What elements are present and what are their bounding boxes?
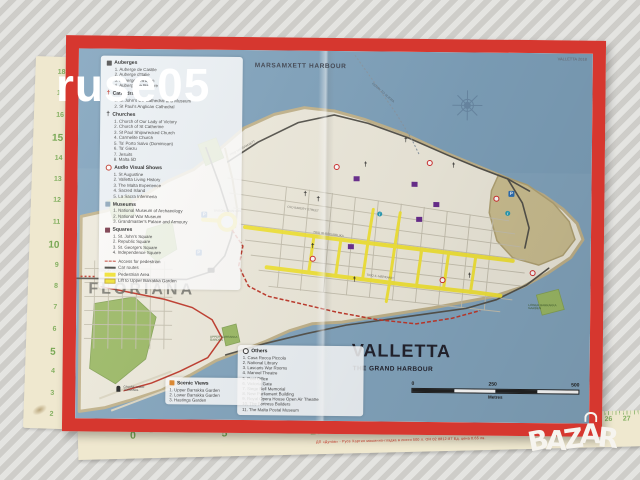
museum-chip-icon xyxy=(105,202,110,207)
church-cross-icon: † xyxy=(106,111,110,118)
church-icon: † xyxy=(316,197,320,204)
bazar-logo: BAZAR xyxy=(527,422,616,458)
museum-icon xyxy=(416,217,422,222)
church-icon: † xyxy=(353,277,357,284)
others-item: 11. The Malta Postal Museum xyxy=(242,407,358,413)
museum-icon xyxy=(348,244,354,249)
grand-harbour-label: THE GRAND HARBOUR xyxy=(353,365,434,373)
church-icon: † xyxy=(468,273,472,280)
attraction-icon xyxy=(440,277,446,283)
legend-section-title: Audio Visual Shows xyxy=(114,165,162,171)
ruler-number: 2 xyxy=(23,410,54,432)
legend-section-museums: Museums 1. National Museum of Archaeolog… xyxy=(105,201,235,225)
ruler-number: 15 xyxy=(33,132,64,154)
valletta-label: VALLETTA xyxy=(352,341,452,362)
church-icon: † xyxy=(452,163,456,170)
scale-zero: 0 xyxy=(411,381,414,387)
marsamxett-harbour-label: MARSAMXETT HARBOUR xyxy=(255,62,347,70)
ruler-number: 16 xyxy=(33,111,64,133)
photo-scene: ruse05 18171615141312111098765432 012345… xyxy=(0,0,640,480)
ruler-number: 11 xyxy=(30,218,61,240)
legend-line-item: Lift to Upper Barrakka Garden xyxy=(104,278,234,286)
others-icon xyxy=(243,348,249,354)
bazar-logo-letter: R xyxy=(596,422,620,455)
cruise-terminal-label: CRUISE LINER TERMINAL xyxy=(123,386,157,393)
legend-section-audio-visual: Audio Visual Shows 1. St Augustine2. Val… xyxy=(105,165,235,200)
ruler-vertical-numbers: 18171615141312111098765432 xyxy=(23,68,66,432)
scenic-views-legend: Scenic Views 1. Upper Barrakka Garden2. … xyxy=(165,377,261,405)
parking-icon: P xyxy=(508,191,514,197)
attraction-icon xyxy=(493,196,499,202)
scale-mid: 250 xyxy=(488,382,496,388)
others-title: Others xyxy=(251,348,267,354)
church-icon: † xyxy=(311,244,315,251)
legend-section-title: Museums xyxy=(113,201,136,207)
attraction-icon xyxy=(530,270,536,276)
scenic-views-icon xyxy=(169,380,174,385)
lower-barrakka-label: LOWER BARRAKKA GARDEN xyxy=(528,304,562,311)
scale-bar: 0 250 500 Metres xyxy=(411,381,579,400)
info-icon: i xyxy=(505,211,510,216)
compass-rose-icon xyxy=(450,88,484,122)
ruler-number: 5 xyxy=(25,346,56,368)
ruler-number: 4 xyxy=(24,367,55,389)
museum-icon xyxy=(354,176,360,181)
legend-section-squares: Squares 1. St. John's Square2. Republic … xyxy=(105,227,235,257)
map-edition-note: VALLETTA 2018 xyxy=(558,57,587,62)
legend-line-symbols: Access for pedestrianCar routesPedestria… xyxy=(104,258,234,286)
scenic-title: Scenic Views xyxy=(177,380,209,386)
legend-section-title: Squares xyxy=(113,227,133,233)
legend-item: 5. La Sacra Infermeria xyxy=(105,193,235,200)
square-chip-icon xyxy=(105,227,110,232)
attraction-icon xyxy=(334,164,340,170)
legend-section-title: Churches xyxy=(112,111,135,117)
legend-item: 4. Independence Square xyxy=(105,250,235,257)
ruler-number: 13 xyxy=(31,175,62,197)
scale-max: 500 xyxy=(571,382,579,388)
ruler-number: 8 xyxy=(27,282,58,304)
church-icon: † xyxy=(404,138,408,145)
watermark: ruse05 xyxy=(56,58,210,112)
church-icon: † xyxy=(303,192,307,199)
legend-item: 8. Malta 5D xyxy=(106,157,236,164)
cruise-terminal-icon xyxy=(116,386,120,392)
upper-barrakka-label: UPPER BARRAKKA GARDEN xyxy=(210,336,240,343)
scenic-item: 3. Hastings Garden xyxy=(169,397,257,403)
ruler-number: 12 xyxy=(30,196,61,218)
legend-item: 3. Grandmaster's Palace and Armoury xyxy=(105,219,235,226)
ruler-number: 6 xyxy=(26,325,57,347)
museum-icon xyxy=(433,202,439,207)
ruler-number: 3 xyxy=(24,389,55,411)
ruler-number: 14 xyxy=(32,154,63,176)
ruler-number: 9 xyxy=(28,260,59,282)
ruler-number: 10 xyxy=(29,239,60,261)
legend-section-churches: †Churches 1. Church of Our Lady of Victo… xyxy=(106,111,237,163)
ruler-number: 7 xyxy=(27,303,58,325)
church-icon: † xyxy=(364,162,368,169)
museum-icon xyxy=(412,182,418,187)
attraction-icon xyxy=(310,256,316,262)
ruler-number: 27 xyxy=(618,415,636,422)
info-icon: i xyxy=(377,211,382,216)
audio-visual-icon xyxy=(106,165,112,171)
attraction-icon xyxy=(427,160,433,166)
